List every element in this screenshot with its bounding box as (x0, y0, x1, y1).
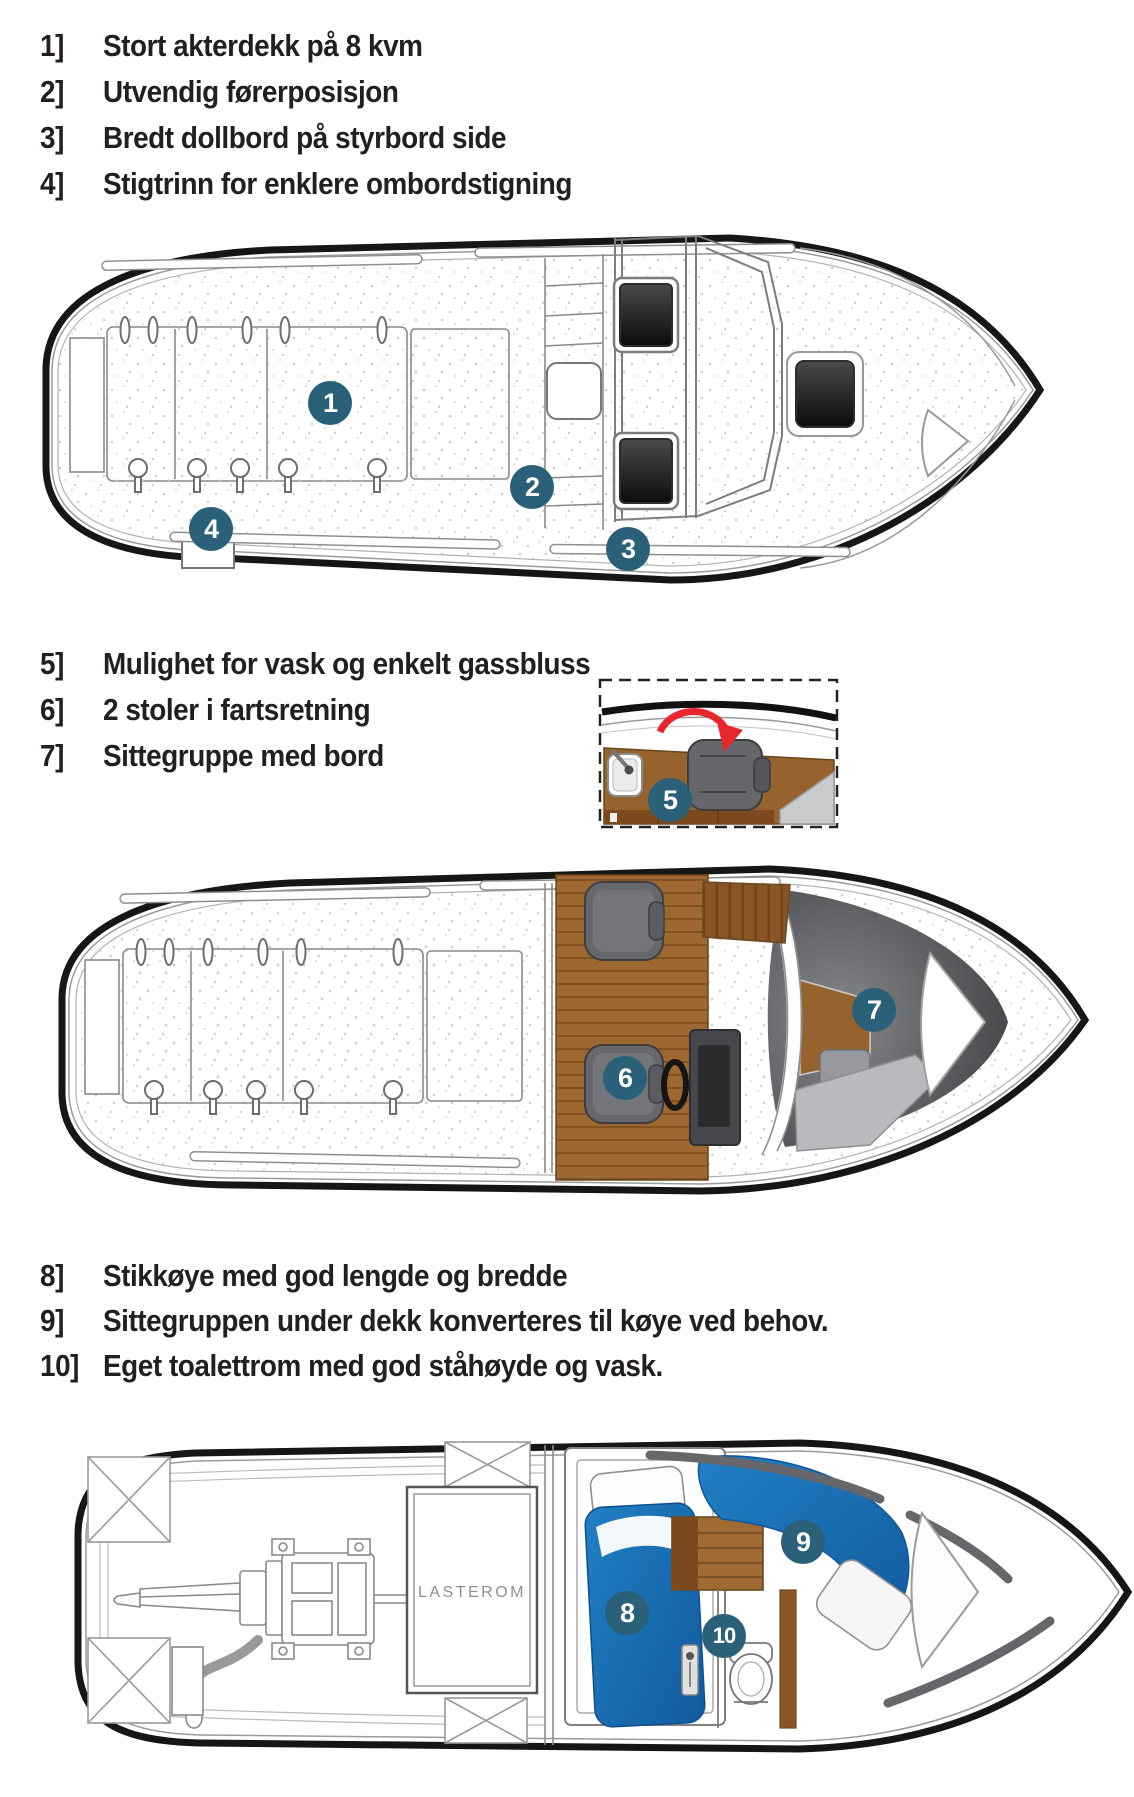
flipped-seat (688, 740, 770, 810)
shower-column (682, 1645, 698, 1695)
legend-group-1: 1] Stort akterdekk på 8 kvm 2] Utvendig … (40, 28, 631, 212)
marker-4: 4 (189, 507, 233, 551)
marker-2: 2 (510, 465, 554, 509)
galley-inset-diagram (598, 678, 840, 830)
legend-number: 3] (40, 120, 103, 156)
foredeck-hatch (787, 352, 863, 436)
marker-5: 5 (648, 778, 692, 822)
muffler-box (172, 1647, 203, 1715)
marker-7: 7 (852, 988, 896, 1032)
legend-item-4: 4] Stigtrinn for enklere ombordstigning (40, 166, 572, 212)
legend-group-3: 8] Stikkøye med god lengde og bredde 9] … (40, 1258, 916, 1393)
companionway-steps (672, 1517, 763, 1590)
aft-deck-storage-hatches (70, 317, 509, 492)
cargo-hold-label: LASTEROM (418, 1584, 526, 1601)
legend-text: Stort akterdekk på 8 kvm (103, 28, 423, 64)
marker-8: 8 (605, 1591, 649, 1635)
legend-item-3: 3] Bredt dollbord på styrbord side (40, 120, 572, 166)
cabin-window-port (614, 278, 678, 352)
legend-number: 9] (40, 1303, 103, 1339)
legend-number: 1] (40, 28, 103, 64)
legend-item-8: 8] Stikkøye med god lengde og bredde (40, 1258, 828, 1303)
legend-number: 2] (40, 74, 103, 110)
helm-seat-port (585, 882, 664, 960)
legend-number: 7] (40, 738, 103, 774)
dashboard (703, 882, 790, 943)
legend-text: Stikkøye med god lengde og bredde (103, 1258, 567, 1294)
legend-text: Eget toalettrom med god ståhøyde og vask… (103, 1348, 663, 1384)
legend-item-7: 7] Sittegruppe med bord (40, 738, 590, 784)
aft-deck-storage-hatches (85, 939, 522, 1114)
marker-3: 3 (606, 527, 650, 571)
legend-number: 10] (40, 1348, 103, 1384)
legend-number: 8] (40, 1258, 103, 1294)
legend-item-2: 2] Utvendig førerposisjon (40, 74, 572, 120)
legend-text: 2 stoler i fartsretning (103, 692, 370, 728)
legend-number: 6] (40, 692, 103, 728)
legend-item-1: 1] Stort akterdekk på 8 kvm (40, 28, 572, 74)
toilet-room-wall (780, 1590, 796, 1728)
legend-text: Utvendig førerposisjon (103, 74, 398, 110)
legend-text: Sittegruppen under dekk konverteres til … (103, 1303, 828, 1339)
marker-1: 1 (308, 381, 352, 425)
boat2-wheelhouse-interior-diagram (40, 855, 1100, 1195)
legend-number: 5] (40, 646, 103, 682)
boat3-below-deck-diagram: LASTEROM (30, 1415, 1134, 1775)
legend-item-10: 10] Eget toalettrom med god ståhøyde og … (40, 1348, 828, 1393)
legend-text: Bredt dollbord på styrbord side (103, 120, 506, 156)
sink (608, 750, 642, 796)
legend-text: Stigtrinn for enklere ombordstigning (103, 166, 572, 202)
legend-item-9: 9] Sittegruppen under dekk konverteres t… (40, 1303, 828, 1348)
marker-10: 10 (702, 1614, 746, 1658)
boat1-exterior-deck-diagram (30, 228, 1080, 588)
legend-text: Mulighet for vask og enkelt gassbluss (103, 646, 590, 682)
cabin-window-starboard (614, 433, 678, 509)
cargo-hold: LASTEROM (407, 1487, 537, 1693)
legend-text: Sittegruppe med bord (103, 738, 384, 774)
legend-group-2: 5] Mulighet for vask og enkelt gassbluss… (40, 646, 651, 784)
legend-number: 4] (40, 166, 103, 202)
legend-item-6: 6] 2 stoler i fartsretning (40, 692, 590, 738)
legend-item-5: 5] Mulighet for vask og enkelt gassbluss (40, 646, 590, 692)
marker-9: 9 (781, 1520, 825, 1564)
marker-6: 6 (603, 1056, 647, 1100)
